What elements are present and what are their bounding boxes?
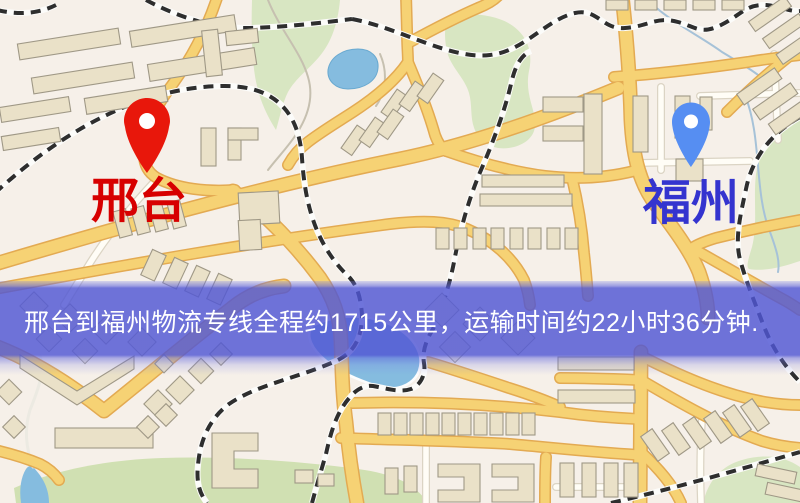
route-info-text: 邢台到福州物流专线全程约1715公里，运输时间约22小时36分钟.	[24, 310, 800, 336]
origin-pin-hole	[139, 113, 155, 129]
map-image: 邢台 福州 邢台到福州物流专线全程约1715公里，运输时间约22小时36分钟.	[0, 0, 800, 503]
destination-pin-hole	[684, 115, 698, 129]
destination-label: 福州	[642, 175, 739, 231]
origin-label: 邢台	[91, 173, 187, 229]
route-info-banner: 邢台到福州物流专线全程约1715公里，运输时间约22小时36分钟.	[0, 281, 800, 375]
map-svg: 邢台 福州	[0, 0, 800, 503]
